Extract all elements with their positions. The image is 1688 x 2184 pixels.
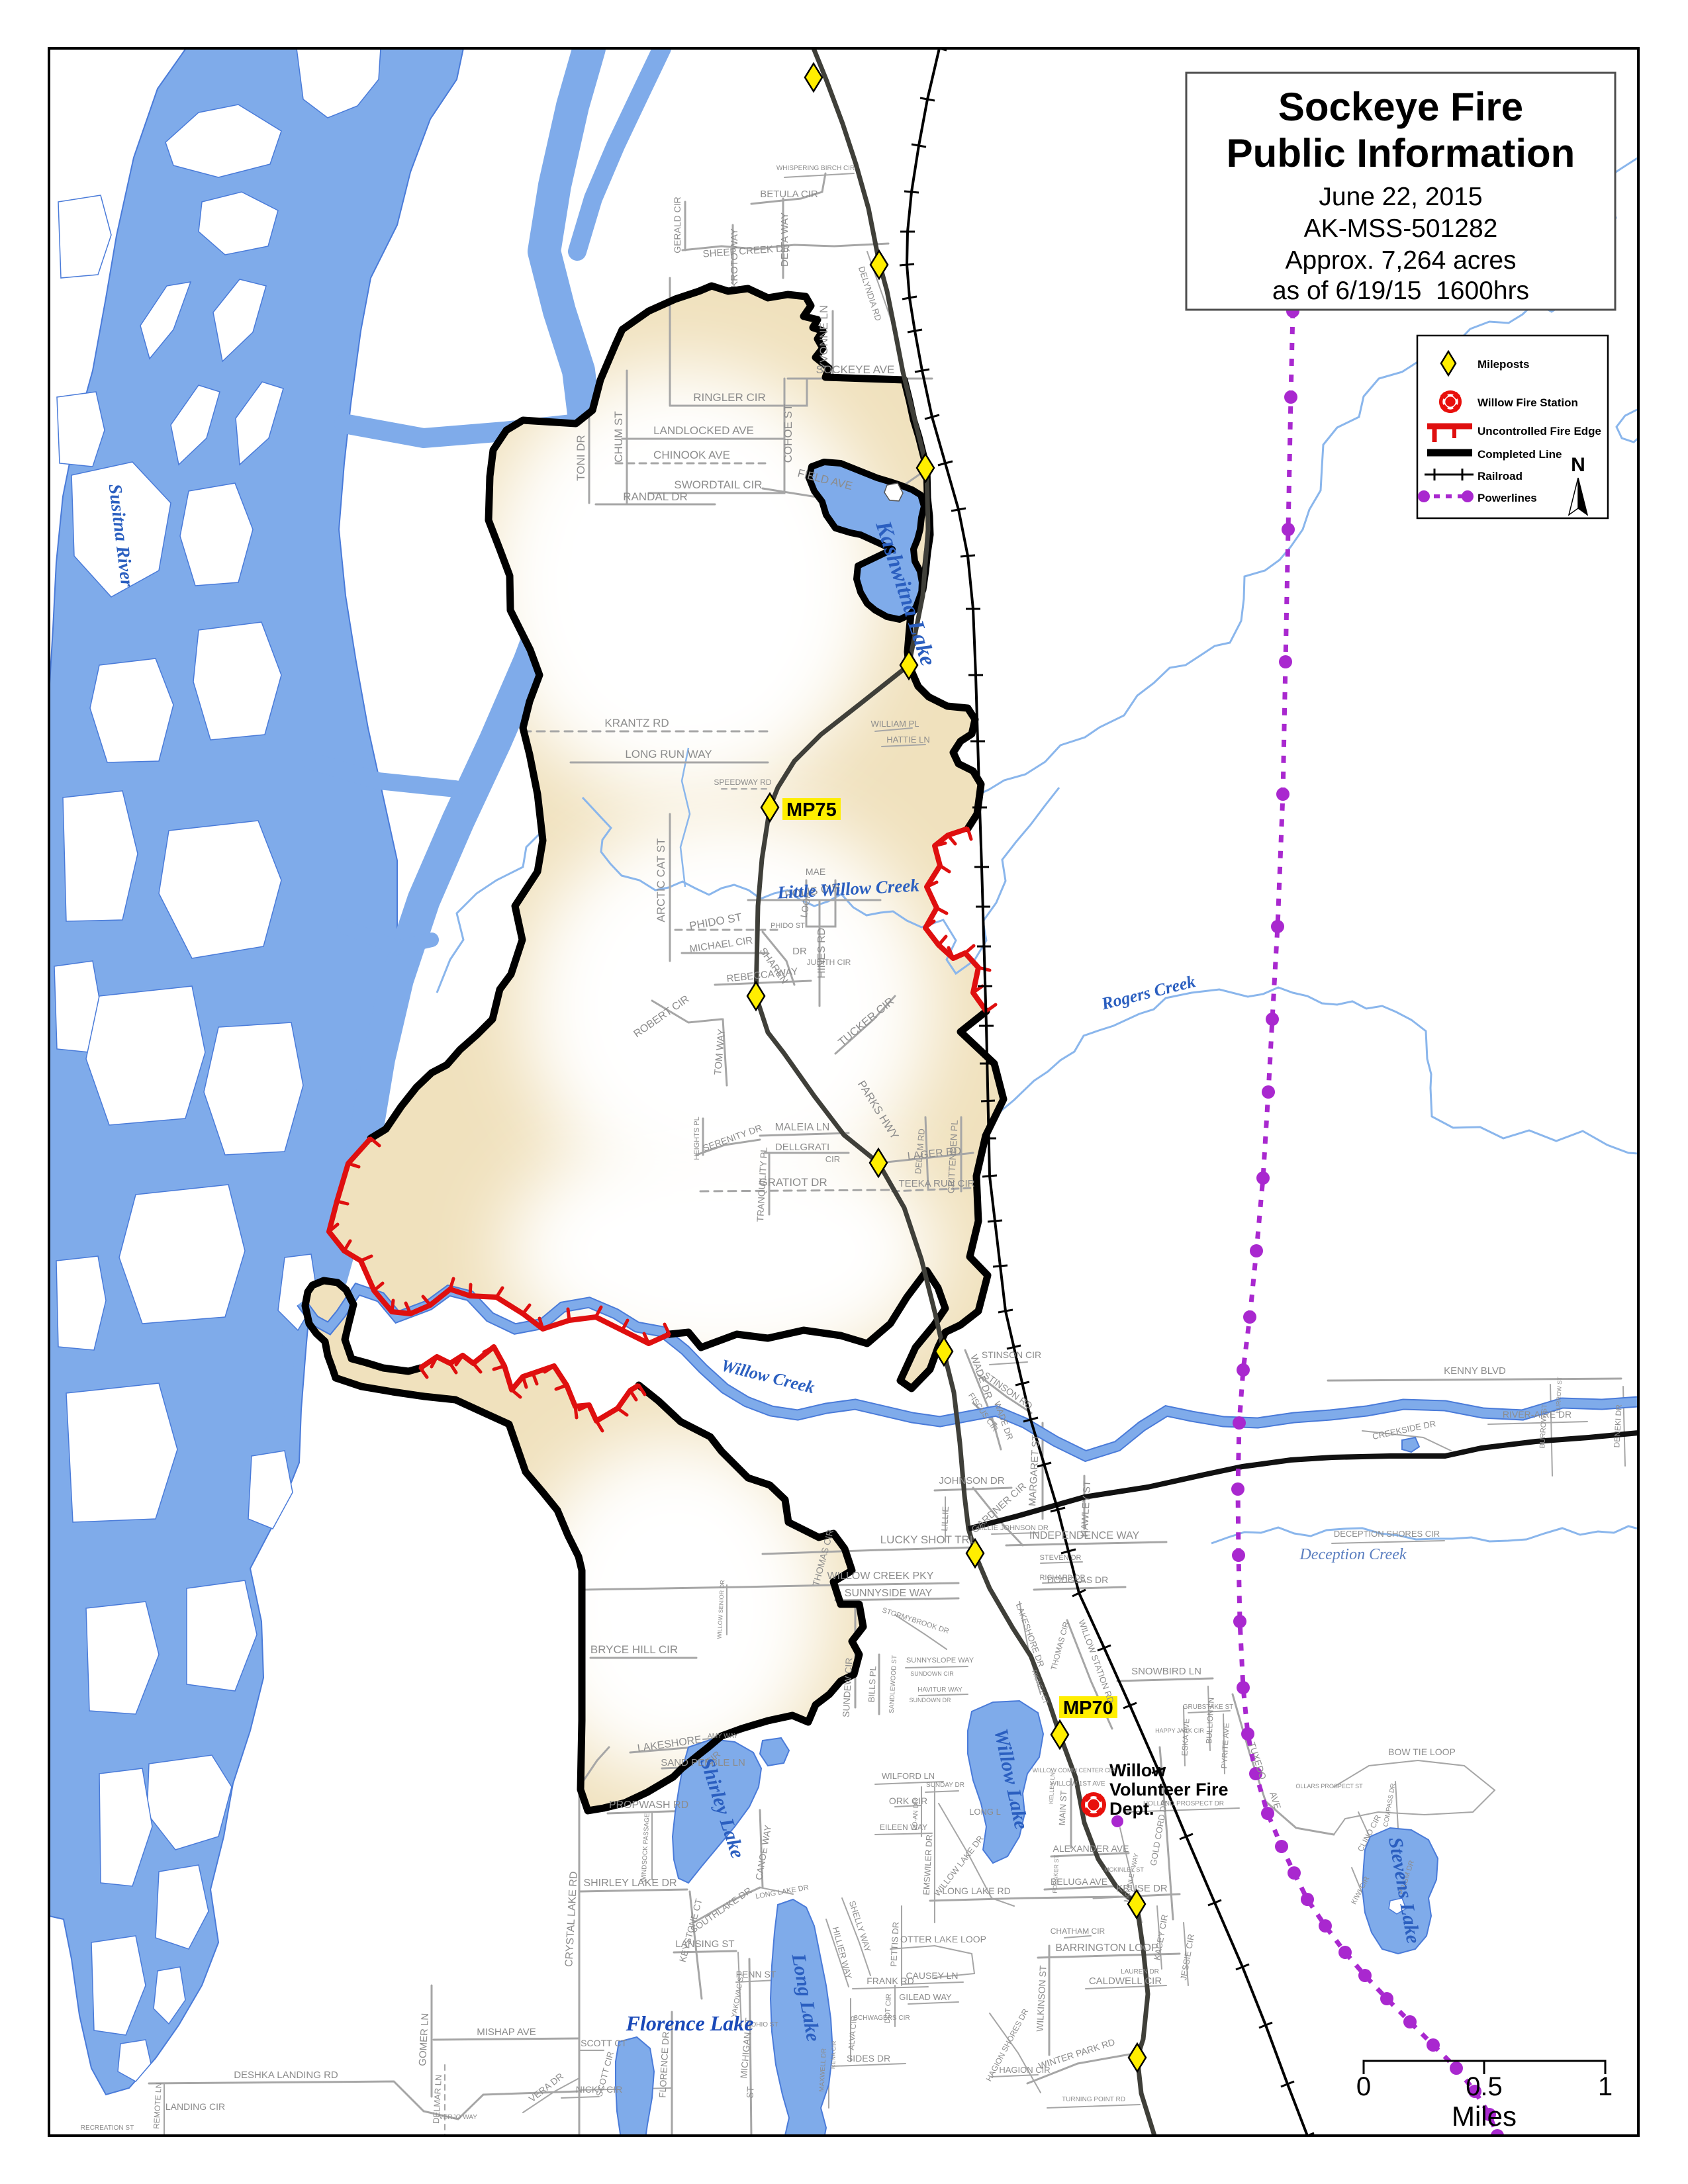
svg-text:WILLOW 1ST AVE: WILLOW 1ST AVE: [1051, 1780, 1105, 1788]
svg-text:HAVITUR WAY: HAVITUR WAY: [917, 1686, 962, 1694]
svg-text:OTTER LAKE LOOP: OTTER LAKE LOOP: [900, 1934, 986, 1944]
svg-text:GERALD CIR: GERALD CIR: [672, 197, 682, 253]
svg-text:SWORDTAIL CIR: SWORDTAIL CIR: [674, 478, 762, 491]
svg-text:Completed Line: Completed Line: [1477, 448, 1562, 461]
svg-text:SUNDOWN DR: SUNDOWN DR: [910, 1697, 951, 1704]
svg-text:CHATHAM CIR: CHATHAM CIR: [1051, 1927, 1105, 1936]
svg-text:PROPWASH RD: PROPWASH RD: [609, 1799, 688, 1811]
svg-text:ARCTIC CAT ST: ARCTIC CAT ST: [655, 839, 667, 923]
svg-text:AK-MSS-501282: AK-MSS-501282: [1304, 214, 1498, 243]
svg-text:KROTO WAY: KROTO WAY: [729, 228, 740, 288]
svg-text:PHIDO ST: PHIDO ST: [771, 922, 805, 930]
svg-text:SUNDAY DR: SUNDAY DR: [926, 1782, 964, 1789]
svg-text:STEVEN DR: STEVEN DR: [1040, 1554, 1082, 1562]
svg-text:COHOE ST: COHOE ST: [782, 404, 794, 463]
svg-text:LANSING ST: LANSING ST: [675, 1938, 734, 1950]
svg-text:TONI DR: TONI DR: [575, 435, 587, 481]
svg-text:HOLLAND PROSPECT DR: HOLLAND PROSPECT DR: [1143, 1800, 1224, 1807]
svg-text:HATTIE LN: HATTIE LN: [886, 735, 930, 745]
svg-text:LILLIE: LILLIE: [939, 1506, 951, 1531]
svg-text:DECEPTION SHORES CIR: DECEPTION SHORES CIR: [1334, 1529, 1440, 1539]
svg-text:LANDING CIR: LANDING CIR: [165, 2101, 225, 2112]
svg-text:LAUREN DR: LAUREN DR: [1121, 1968, 1159, 1976]
svg-text:Deception Creek: Deception Creek: [1299, 1546, 1406, 1563]
svg-text:Approx. 7,264 acres: Approx. 7,264 acres: [1285, 246, 1516, 275]
svg-text:WILLOW CREEK PKY: WILLOW CREEK PKY: [827, 1570, 934, 1582]
svg-text:RECREATION ST: RECREATION ST: [81, 2124, 134, 2132]
svg-text:KENNY BLVD: KENNY BLVD: [1444, 1365, 1506, 1377]
svg-text:VERJO WAY: VERJO WAY: [439, 2114, 477, 2121]
svg-text:TURNING POINT RD: TURNING POINT RD: [1062, 2096, 1125, 2103]
svg-text:MAIN ST: MAIN ST: [1057, 1790, 1069, 1825]
svg-text:ESKA AVE: ESKA AVE: [1180, 1718, 1192, 1756]
svg-text:Volunteer Fire: Volunteer Fire: [1109, 1780, 1229, 1799]
svg-text:CHUM ST: CHUM ST: [612, 411, 625, 462]
svg-text:YVONNE LN: YVONNE LN: [818, 305, 830, 370]
svg-text:JOHNSON DR: JOHNSON DR: [939, 1475, 1004, 1486]
svg-text:MISHAP AVE: MISHAP AVE: [477, 2026, 536, 2038]
svg-text:ORK CIR: ORK CIR: [889, 1796, 927, 1806]
svg-text:Powerlines: Powerlines: [1477, 492, 1537, 504]
svg-text:LANDLOCKED AVE: LANDLOCKED AVE: [653, 424, 754, 437]
svg-text:SPEEDWAY RD: SPEEDWAY RD: [714, 778, 771, 787]
svg-text:OHIO ST: OHIO ST: [751, 2021, 778, 2028]
svg-text:Sockeye Fire: Sockeye Fire: [1278, 85, 1523, 129]
svg-text:GILEAD WAY: GILEAD WAY: [899, 1992, 952, 2002]
svg-text:Miles: Miles: [1452, 2101, 1517, 2132]
svg-text:Willow: Willow: [1109, 1760, 1166, 1780]
svg-text:N: N: [1571, 454, 1585, 476]
svg-text:WILLIAM PL: WILLIAM PL: [871, 719, 919, 729]
svg-text:DESHKA LANDING RD: DESHKA LANDING RD: [234, 2070, 338, 2081]
svg-text:BILLS PL: BILLS PL: [867, 1666, 878, 1703]
svg-text:HEIGHTS PL: HEIGHTS PL: [693, 1116, 701, 1160]
svg-text:SUNDOWN CIR: SUNDOWN CIR: [910, 1670, 954, 1677]
svg-text:BRYCE HILL CIR: BRYCE HILL CIR: [590, 1643, 678, 1656]
svg-text:1: 1: [1598, 2072, 1613, 2101]
svg-text:ALEXANDER AVE: ALEXANDER AVE: [1053, 1843, 1129, 1854]
svg-text:CIR: CIR: [825, 1154, 840, 1164]
svg-text:WILFORD LN: WILFORD LN: [882, 1771, 935, 1781]
svg-text:DR: DR: [792, 946, 807, 957]
svg-text:SCOTT CT: SCOTT CT: [581, 2038, 627, 2048]
svg-text:JUDITH CIR: JUDITH CIR: [807, 958, 851, 967]
svg-text:BARRINGTON LOOP: BARRINGTON LOOP: [1055, 1942, 1158, 1954]
svg-text:SCHWAGERS CIR: SCHWAGERS CIR: [853, 2015, 910, 2022]
svg-text:SHIRLEY LAKE DR: SHIRLEY LAKE DR: [583, 1878, 677, 1889]
svg-text:HAPPY JACK CIR: HAPPY JACK CIR: [1155, 1727, 1204, 1734]
svg-text:INDEPENDENCE WAY: INDEPENDENCE WAY: [1029, 1530, 1140, 1541]
svg-text:Willow Fire Station: Willow Fire Station: [1477, 396, 1578, 409]
svg-text:BELUGA AVE: BELUGA AVE: [1051, 1876, 1107, 1887]
svg-text:Railroad: Railroad: [1477, 470, 1523, 482]
svg-text:WHISPERING BIRCH CIR: WHISPERING BIRCH CIR: [776, 165, 855, 172]
svg-text:KRANTZ RD: KRANTZ RD: [604, 717, 669, 729]
svg-text:ST: ST: [744, 2086, 756, 2099]
svg-text:CAUSEY LN: CAUSEY LN: [906, 1970, 958, 1981]
svg-text:MCKINLEY ST: MCKINLEY ST: [1104, 1866, 1144, 1873]
svg-text:June 22, 2015: June 22, 2015: [1319, 183, 1482, 211]
svg-text:RINGLER CIR: RINGLER CIR: [693, 391, 766, 404]
svg-text:SNOWBIRD LN: SNOWBIRD LN: [1131, 1666, 1201, 1677]
svg-text:STINSON CIR: STINSON CIR: [982, 1349, 1041, 1360]
svg-text:as of 6/19/15 1600hrs: as of 6/19/15 1600hrs: [1272, 277, 1529, 305]
svg-text:NICKY CIR: NICKY CIR: [576, 2084, 623, 2095]
svg-text:HINES RD: HINES RD: [816, 928, 827, 978]
svg-text:Uncontrolled Fire Edge: Uncontrolled Fire Edge: [1477, 425, 1601, 437]
svg-text:0: 0: [1356, 2072, 1371, 2101]
svg-text:DELLGRATI: DELLGRATI: [775, 1142, 829, 1153]
svg-text:AMY WAY: AMY WAY: [708, 1733, 738, 1740]
svg-text:MAE: MAE: [806, 866, 825, 877]
svg-text:Public Information: Public Information: [1227, 131, 1575, 175]
svg-text:Florence Lake: Florence Lake: [626, 2011, 754, 2035]
svg-text:OLLARS PROSPECT ST: OLLARS PROSPECT ST: [1295, 1783, 1363, 1790]
svg-text:RANDAL DR: RANDAL DR: [623, 490, 688, 503]
svg-text:SUNNYSLOPE WAY: SUNNYSLOPE WAY: [906, 1657, 974, 1664]
svg-text:0.5: 0.5: [1466, 2072, 1503, 2101]
svg-text:MALEIA LN: MALEIA LN: [775, 1122, 830, 1133]
svg-text:DOUGLAS DR: DOUGLAS DR: [1047, 1574, 1109, 1585]
svg-text:WILLOW COMM CENTER CIR: WILLOW COMM CENTER CIR: [1033, 1767, 1115, 1774]
svg-text:SUNNYSIDE WAY: SUNNYSIDE WAY: [845, 1588, 933, 1599]
svg-text:KRUSE DR: KRUSE DR: [1116, 1883, 1168, 1894]
svg-text:LONG L: LONG L: [969, 1807, 1001, 1817]
svg-text:LONG LAKE RD: LONG LAKE RD: [942, 1886, 1010, 1896]
svg-text:Mileposts: Mileposts: [1477, 358, 1529, 371]
svg-text:DELTA WAY: DELTA WAY: [779, 212, 790, 267]
svg-text:CALDWELL CIR: CALDWELL CIR: [1089, 1976, 1162, 1987]
svg-text:BOW TIE LOOP: BOW TIE LOOP: [1388, 1747, 1456, 1757]
svg-text:SIDES DR: SIDES DR: [847, 2053, 890, 2064]
svg-text:CHINOOK AVE: CHINOOK AVE: [653, 449, 730, 461]
svg-text:GRUBSTAKE ST: GRUBSTAKE ST: [1183, 1704, 1234, 1711]
svg-text:EILEEN WAY: EILEEN WAY: [880, 1823, 927, 1832]
svg-text:LONG RUN WAY: LONG RUN WAY: [625, 748, 712, 760]
svg-text:MP75: MP75: [786, 799, 837, 821]
svg-text:GRATIOT DR: GRATIOT DR: [759, 1176, 827, 1189]
svg-text:BETULA CIR: BETULA CIR: [760, 189, 818, 200]
svg-text:TEEKA RUN CIR: TEEKA RUN CIR: [898, 1178, 974, 1189]
svg-text:LUCKY SHOT TRL: LUCKY SHOT TRL: [880, 1533, 976, 1546]
